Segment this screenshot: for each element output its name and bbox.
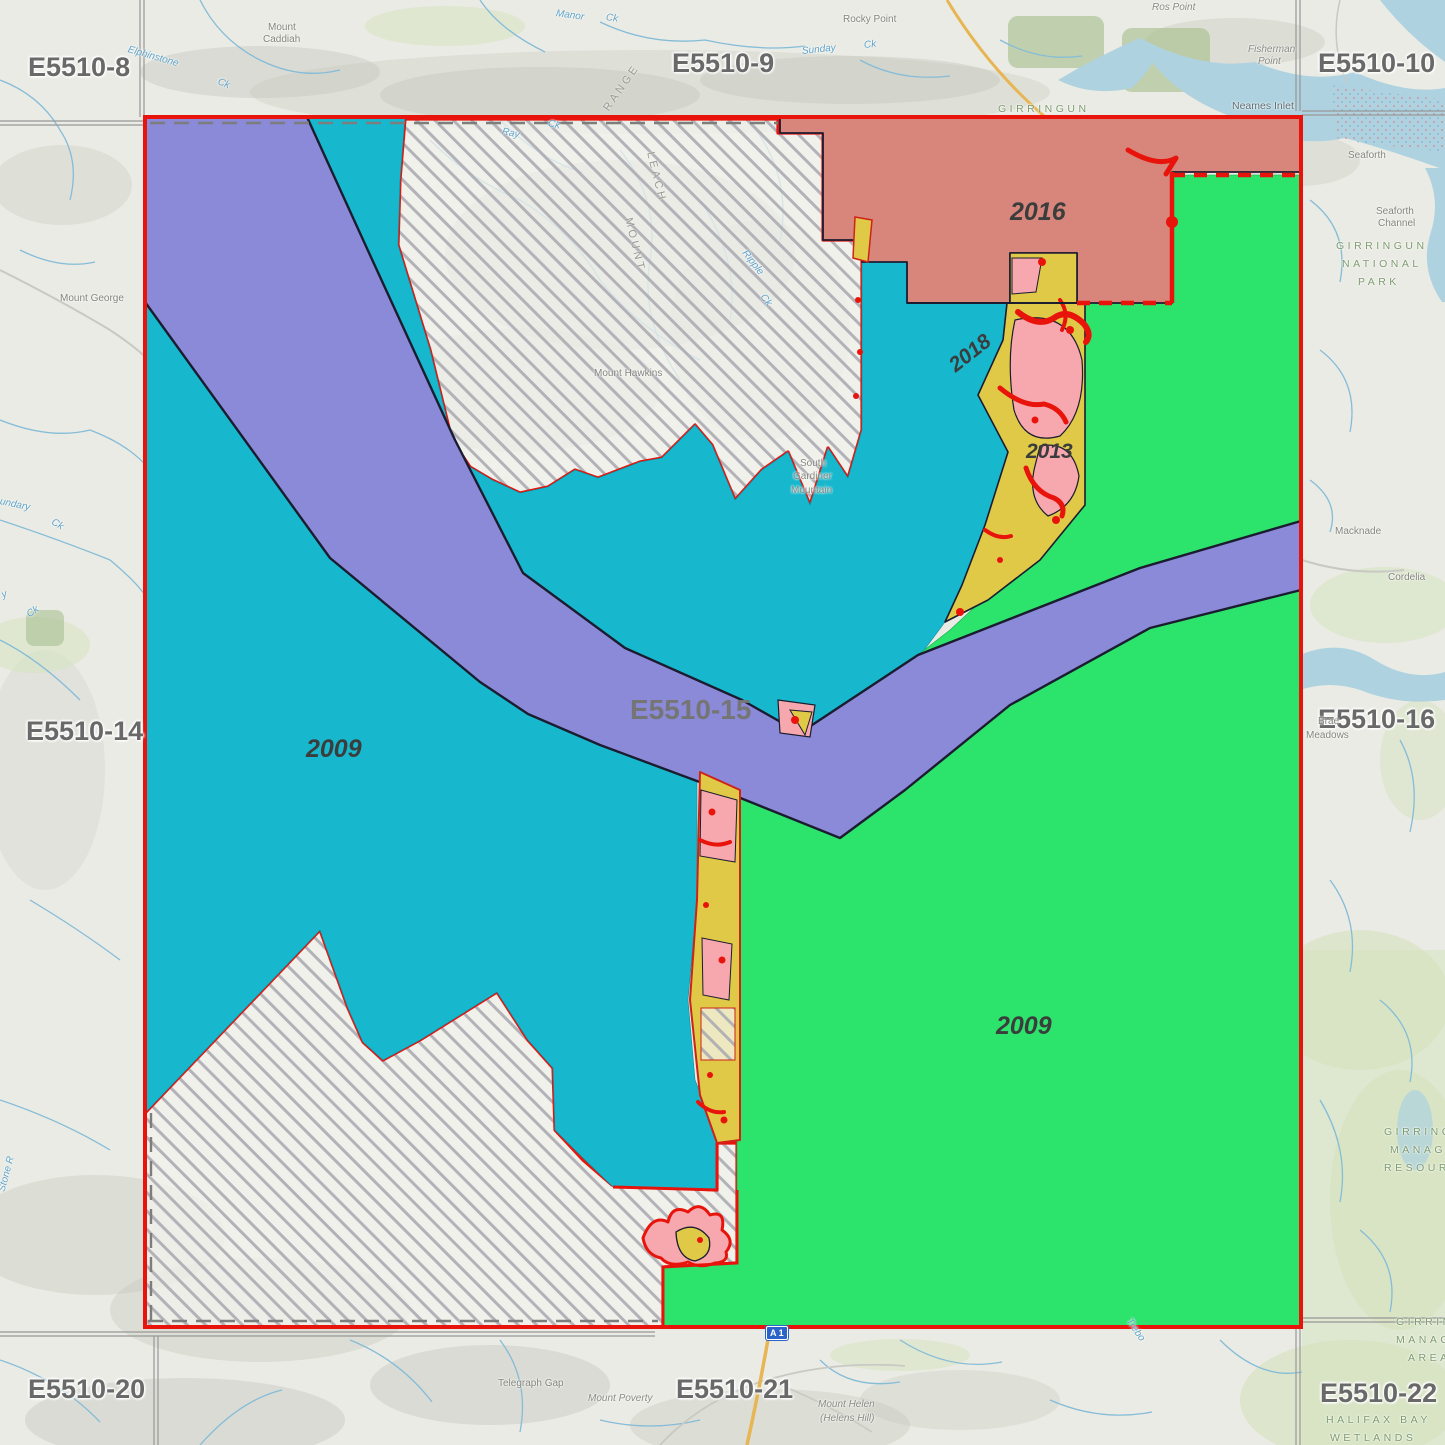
hatched-area-north[interactable] bbox=[398, 119, 862, 505]
map-canvas bbox=[0, 0, 1445, 1445]
capture-year-overlay bbox=[145, 117, 1301, 1327]
map-viewport[interactable]: E5510-8E5510-9E5510-10E5510-14E5510-15E5… bbox=[0, 0, 1445, 1445]
